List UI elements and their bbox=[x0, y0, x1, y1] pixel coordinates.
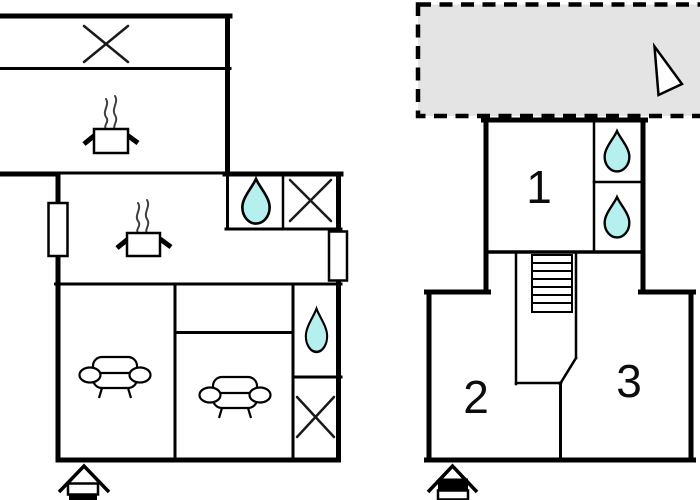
steam-icon bbox=[105, 96, 116, 130]
hotplate-icon bbox=[84, 96, 138, 153]
window-cross-icon bbox=[297, 397, 334, 437]
room-label-3: 3 bbox=[616, 355, 642, 407]
hotplate-icon bbox=[117, 200, 171, 256]
pot-body bbox=[127, 233, 160, 256]
left-unit-interior-walls bbox=[0, 69, 341, 461]
floorplan-left-unit bbox=[0, 16, 347, 500]
entrance-icon bbox=[59, 466, 109, 500]
pot-handle bbox=[160, 239, 171, 247]
room-label-1: 1 bbox=[526, 161, 552, 213]
window-icon bbox=[49, 203, 68, 256]
water-drop-icon bbox=[242, 179, 269, 224]
steam-icon bbox=[137, 200, 148, 234]
stairs-icon bbox=[532, 255, 572, 312]
floorplan-canvas: 1 2 3 bbox=[0, 0, 700, 500]
floorplan-svg: 1 2 3 bbox=[0, 0, 700, 500]
entrance-icon bbox=[428, 466, 477, 500]
wall-segment bbox=[560, 358, 576, 384]
window-cross-icon bbox=[290, 180, 331, 221]
sofa-icon bbox=[200, 377, 271, 418]
water-drop-icon bbox=[306, 309, 327, 352]
window-cross-icon bbox=[84, 26, 128, 62]
sofa-icon bbox=[80, 357, 151, 398]
floorplan-right-unit: 1 2 3 bbox=[418, 5, 700, 500]
room-label-2: 2 bbox=[463, 371, 489, 423]
pot-body bbox=[94, 129, 128, 153]
window-icon bbox=[329, 232, 347, 281]
